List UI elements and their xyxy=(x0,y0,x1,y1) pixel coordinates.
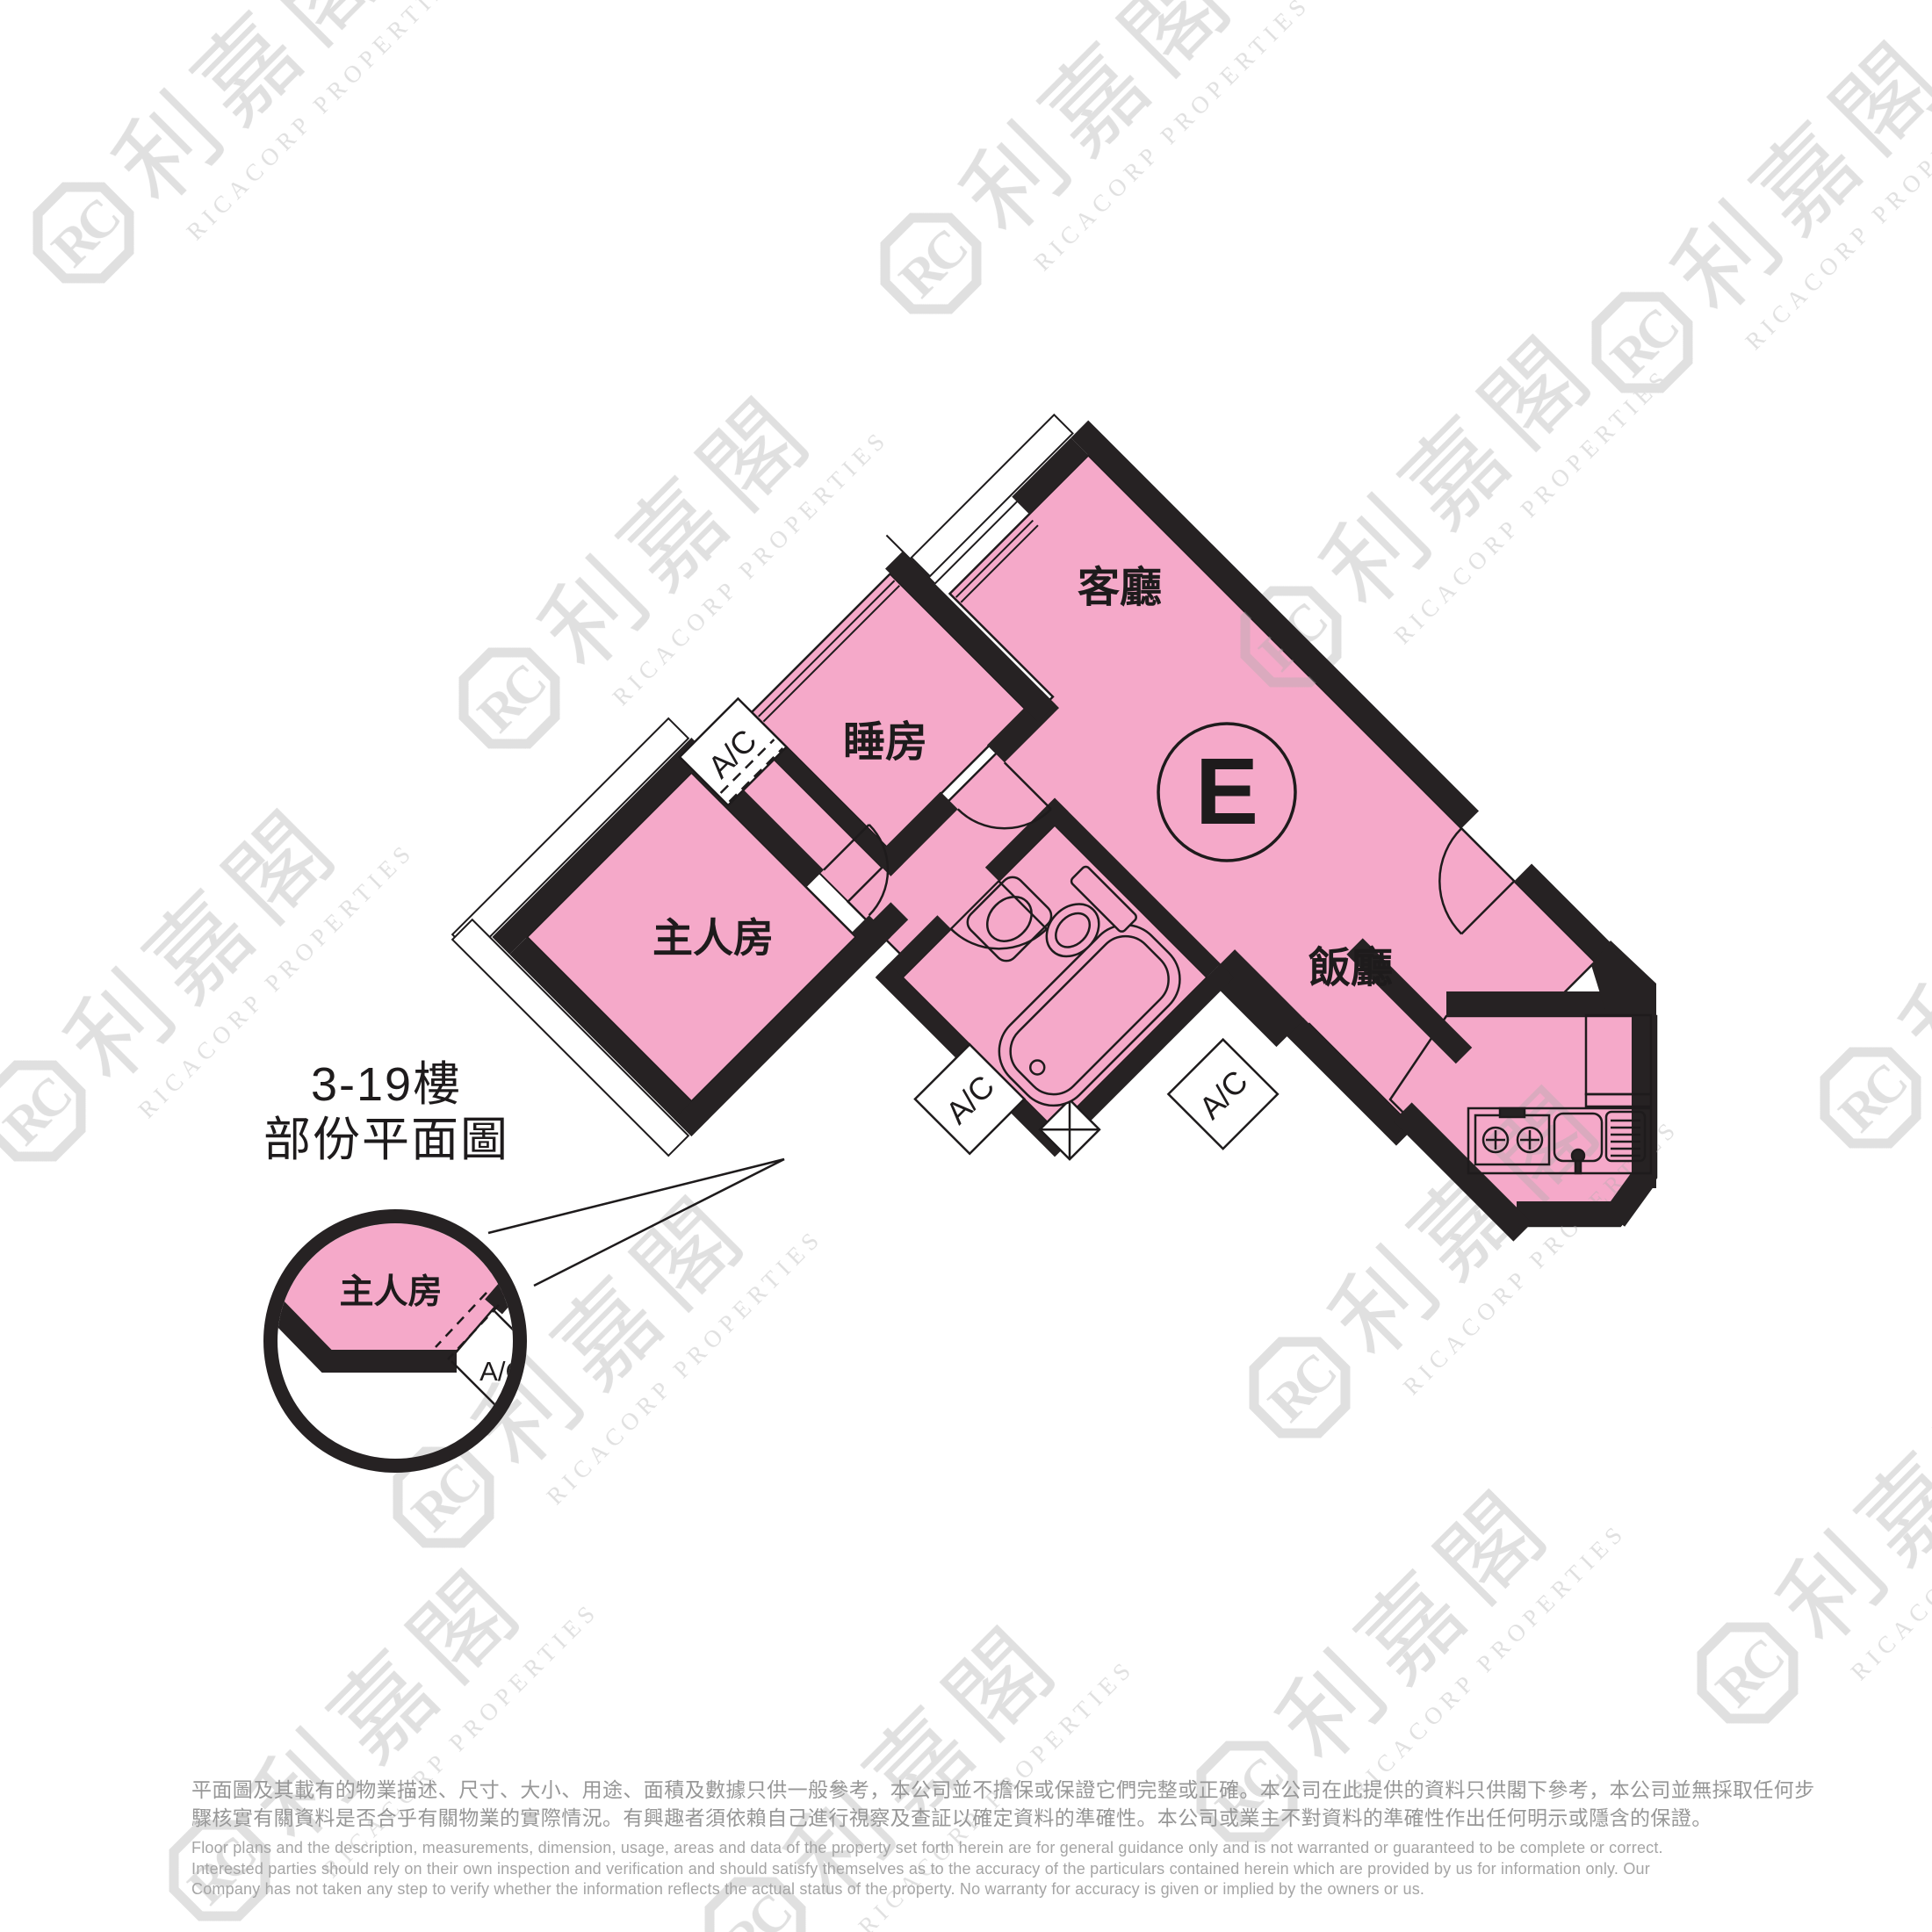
detail-room-label: 主人房 xyxy=(339,1273,442,1311)
floorplan-page: RC 利嘉閣 RICACORP PROPERTIES xyxy=(0,0,1932,1932)
disclaimer-en-line2: Interested parties should rely on their … xyxy=(191,1859,1930,1880)
disclaimer-english: Floor plans and the description, measure… xyxy=(191,1838,1930,1900)
label-dining-room: 飯廳 xyxy=(1308,945,1393,991)
floorplan-svg: RC 利嘉閣 RICACORP PROPERTIES xyxy=(0,0,1932,1932)
label-living-room: 客廳 xyxy=(1078,565,1162,611)
plan-title: 3-19樓 部份平面圖 xyxy=(195,1057,578,1168)
plan-title-line2: 部份平面圖 xyxy=(195,1113,578,1168)
disclaimer-chinese: 平面圖及其載有的物業描述、尺寸、大小、用途、面積及數據只供一般參考，本公司並不擔… xyxy=(191,1776,1930,1832)
unit-letter: E xyxy=(1195,738,1258,844)
label-master-bedroom: 主人房 xyxy=(652,915,774,961)
disclaimer-en-line1: Floor plans and the description, measure… xyxy=(191,1838,1930,1859)
disclaimer-en-line3: Company has not taken any step to verify… xyxy=(191,1879,1930,1900)
disclaimer-zh-line2: 驟核實有關資料是否合乎有關物業的實際情況。有興趣者須依賴自己進行視察及查証以確定… xyxy=(191,1804,1930,1832)
label-bedroom: 睡房 xyxy=(843,719,927,766)
plan-title-line1: 3-19樓 xyxy=(195,1057,578,1113)
disclaimer-zh-line1: 平面圖及其載有的物業描述、尺寸、大小、用途、面積及數據只供一般參考，本公司並不擔… xyxy=(191,1776,1930,1804)
